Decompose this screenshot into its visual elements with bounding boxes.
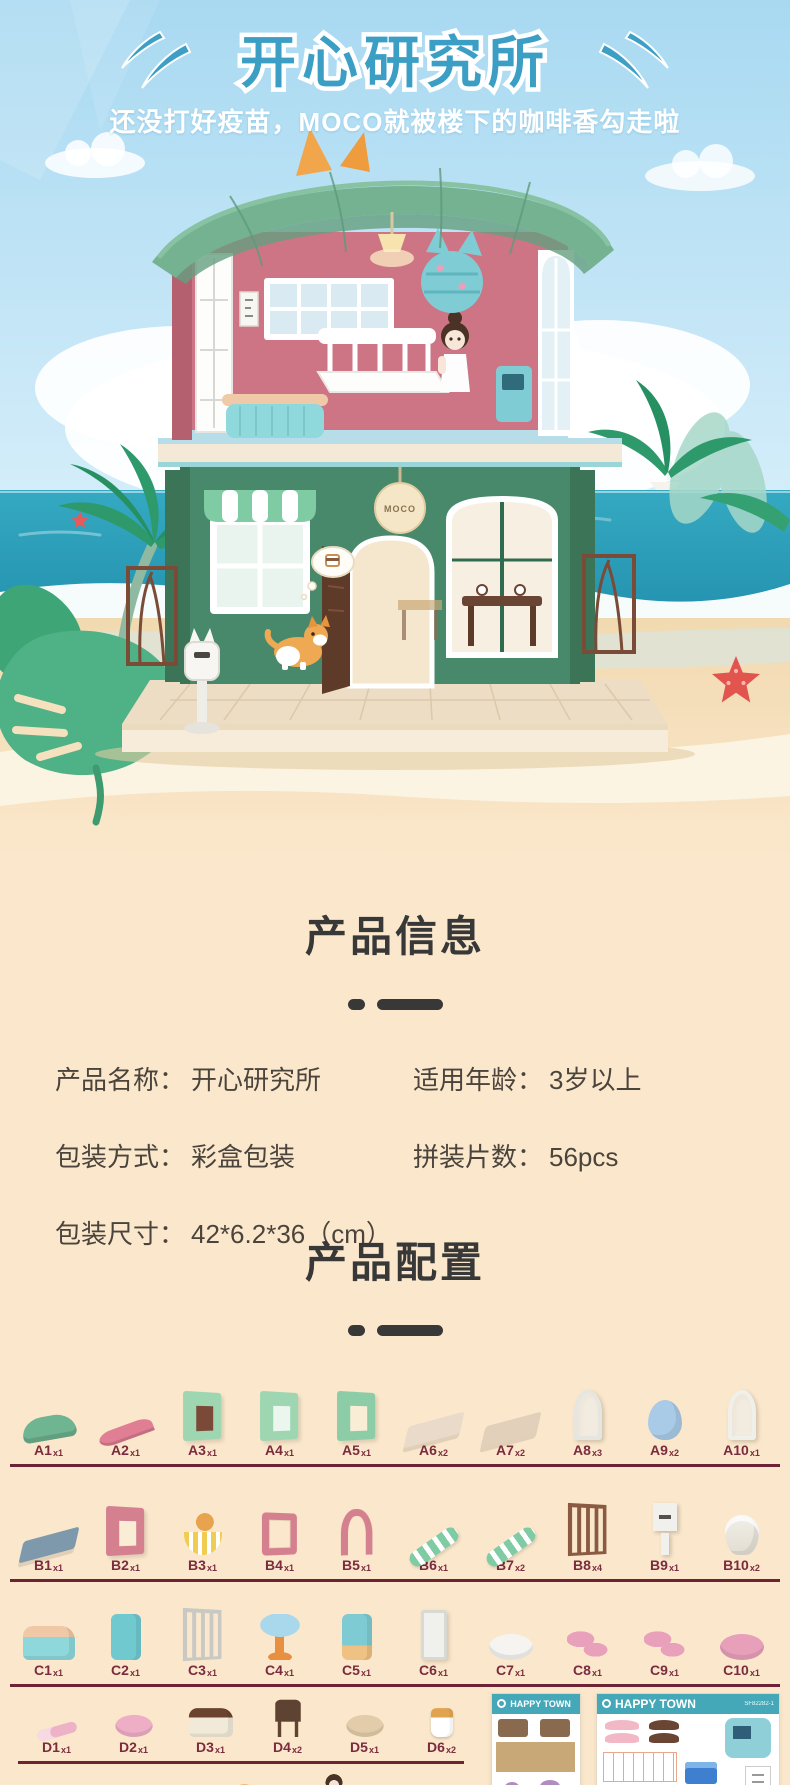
part-c4: C4x1 — [241, 1602, 318, 1678]
floor-panel-icon — [405, 1382, 463, 1440]
chair-icon-shape — [274, 1699, 301, 1736]
heading-underline — [0, 999, 790, 1010]
part-b1: B1x1 — [10, 1497, 87, 1573]
part-a10: A10x1 — [703, 1382, 780, 1458]
part-d4: D4x2 — [249, 1695, 326, 1755]
pink-roof-slope-icon — [98, 1382, 154, 1440]
part-label: D6x2 — [427, 1740, 456, 1755]
donut-icon — [228, 1778, 259, 1785]
parts-row-a: A1x1A2x1A3x1A4x1A5x1A6x2A7x2A8x3A9x2A10x… — [0, 1376, 790, 1462]
part-b7: B7x2 — [472, 1497, 549, 1573]
part-label: C6x1 — [419, 1663, 448, 1678]
part-d6: D6x2 — [403, 1695, 480, 1755]
part-a6: A6x2 — [395, 1382, 472, 1458]
part-c3: C3x1 — [164, 1602, 241, 1678]
part-a8: A8x3 — [549, 1382, 626, 1458]
sheet-header: HAPPY TOWN SF82282-1 — [597, 1694, 779, 1714]
part-label: C4x1 — [265, 1663, 294, 1678]
sheet-page: HAPPY TOWN — [491, 1693, 581, 1785]
basin-icon — [115, 1701, 152, 1737]
part-label: B1x1 — [34, 1558, 63, 1573]
part-label: B2x1 — [111, 1558, 140, 1573]
part-label: C7x1 — [496, 1663, 525, 1678]
row-divider — [10, 1579, 780, 1582]
sticker-brown-arc-icon — [649, 1733, 679, 1743]
cat-shelf-icon — [111, 1602, 141, 1660]
parts-row-c: C1x1C2x1C3x1C4x1C5x1C6x1C7x1C8x1C9x1C10x… — [0, 1586, 790, 1682]
coffee-cup-icon-shape — [430, 1708, 452, 1737]
part-c1: C1x1 — [10, 1602, 87, 1678]
sticker-brown-arc-icon — [649, 1720, 679, 1730]
part-label: A1x1 — [34, 1443, 63, 1458]
info-label: 包装方式： — [55, 1142, 185, 1172]
sticker-wall-band-icon — [496, 1742, 575, 1772]
pink-holder-icon — [720, 1602, 764, 1660]
green-roof-arch-icon-shape — [20, 1411, 77, 1444]
sheet-stickers — [597, 1714, 779, 1785]
sticker-counter-icon — [540, 1719, 570, 1737]
info-field-age: 适用年龄：3岁以上 — [413, 1060, 735, 1097]
part-d2: D2x1 — [95, 1695, 172, 1755]
parts-row-d: D1x1D2x1D3x1D4x2D5x1D6x2 — [8, 1691, 490, 1759]
door-wall-panel-icon — [183, 1382, 223, 1440]
chair-icon — [274, 1701, 301, 1737]
part-c10: C10x1 — [703, 1602, 780, 1678]
product-config-section: 产品配置 A1x1A2x1A3x1A4x1A5x1A6x2A7x2A8x3A9x… — [0, 1160, 790, 1785]
part-b2: B2x1 — [87, 1497, 164, 1573]
balcony-corgi-icon — [184, 1497, 222, 1555]
pink-accessories-2-icon — [644, 1602, 686, 1660]
info-value: 开心研究所 — [191, 1065, 321, 1095]
underline-dash — [377, 1325, 443, 1336]
part-label: A6x2 — [419, 1443, 448, 1458]
part-label: C1x1 — [34, 1663, 63, 1678]
pink-holder-icon-shape — [720, 1634, 764, 1660]
house-sign-text: MOCO — [384, 504, 416, 514]
part-d3: D3x1 — [172, 1695, 249, 1755]
product-info-heading: 产品信息 — [0, 903, 790, 964]
sticker-pink-arc-icon — [605, 1733, 639, 1743]
part-e3: E3x2 — [199, 1772, 289, 1785]
cat-shelf-icon-shape — [111, 1614, 141, 1660]
part-label: B4x1 — [265, 1558, 294, 1573]
part-b5: B5x1 — [318, 1497, 395, 1573]
part-label: A5x1 — [342, 1443, 371, 1458]
garden-fence-icon — [568, 1497, 608, 1555]
part-c7: C7x1 — [472, 1602, 549, 1678]
parts-bottom-left: D1x1D2x1D3x1D4x2D5x1D6x2 E1x2E2x2E3x2E4x… — [8, 1691, 476, 1785]
part-b3: B3x1 — [164, 1497, 241, 1573]
part-label: B10x2 — [723, 1558, 760, 1573]
tray-icon — [489, 1602, 533, 1660]
product-info-section: 产品信息 产品名称：开心研究所适用年龄：3岁以上包装方式：彩盒包装拼装片数：56… — [0, 862, 790, 1160]
info-field-pack: 包装方式：彩盒包装 — [55, 1137, 413, 1174]
info-value: 3岁以上 — [549, 1065, 641, 1095]
sheet-header: HAPPY TOWN — [492, 1694, 580, 1714]
part-a2: A2x1 — [87, 1382, 164, 1458]
pink-arch-doorway-icon — [341, 1497, 373, 1555]
girl-figure-icon — [323, 1778, 347, 1785]
thermometer-icon — [36, 1701, 77, 1737]
part-d5: D5x1 — [326, 1695, 403, 1755]
pink-window-wall-icon-shape — [106, 1506, 144, 1556]
bread-basket-icon-shape — [346, 1715, 383, 1737]
instruction-sheet-1: HAPPY TOWN — [490, 1693, 582, 1785]
row-divider — [10, 1684, 780, 1687]
fence-divider-icon — [183, 1602, 223, 1660]
brand-logo-icon — [497, 1699, 506, 1708]
info-value: 彩盒包装 — [191, 1142, 295, 1172]
sheet-title: HAPPY TOWN — [615, 1697, 696, 1711]
instruction-sheet-2: HAPPY TOWN SF82282-1 — [596, 1693, 780, 1785]
part-e1: E1x2 — [18, 1772, 108, 1785]
pink-window-wall-icon — [106, 1497, 146, 1555]
reception-counter-icon — [23, 1602, 75, 1660]
fence-divider-icon-shape — [182, 1608, 221, 1661]
part-e2: E2x2 — [108, 1772, 198, 1785]
part-a1: A1x1 — [10, 1382, 87, 1458]
parts-grid: A1x1A2x1A3x1A4x1A5x1A6x2A7x2A8x3A9x2A10x… — [0, 1376, 790, 1785]
part-label: A7x2 — [496, 1443, 525, 1458]
row-divider — [18, 1761, 464, 1764]
part-label: C2x1 — [111, 1663, 140, 1678]
part-label: B9x1 — [650, 1558, 679, 1573]
part-label: C8x1 — [573, 1663, 602, 1678]
part-label: D1x1 — [42, 1740, 71, 1755]
sticker-accessory-icon — [540, 1780, 560, 1785]
underline-dot — [348, 1325, 365, 1336]
coffee-cup-icon — [430, 1701, 452, 1737]
part-label: C9x1 — [650, 1663, 679, 1678]
info-field-name: 产品名称：开心研究所 — [55, 1060, 413, 1097]
part-label: B3x1 — [188, 1558, 217, 1573]
part-label: A4x1 — [265, 1443, 294, 1458]
part-label: D2x1 — [119, 1740, 148, 1755]
part-b8: B8x4 — [549, 1497, 626, 1573]
underline-dot — [348, 999, 365, 1010]
part-c2: C2x1 — [87, 1602, 164, 1678]
part-a3: A3x1 — [164, 1382, 241, 1458]
sticker-logo-card-icon — [685, 1762, 717, 1784]
round-table-icon — [260, 1602, 300, 1660]
pedestal-table-icon-shape — [725, 1515, 759, 1555]
reception-counter-icon-shape — [23, 1626, 75, 1660]
pink-accessories-icon — [567, 1602, 609, 1660]
part-b9: B9x1 — [626, 1497, 703, 1573]
cake-counter-icon — [188, 1701, 232, 1737]
coffee-machine-icon-shape — [342, 1614, 372, 1660]
part-label: B8x4 — [573, 1558, 602, 1573]
part-label: D4x2 — [273, 1740, 302, 1755]
part-label: D3x1 — [196, 1740, 225, 1755]
part-b6: B6x1 — [395, 1497, 472, 1573]
part-b10: B10x2 — [703, 1497, 780, 1573]
part-e4: E4x1 — [289, 1772, 379, 1785]
part-label: C10x1 — [723, 1663, 760, 1678]
sheet-stickers — [492, 1714, 580, 1785]
part-e5: E5x1 — [380, 1772, 470, 1785]
part-label: C5x1 — [342, 1663, 371, 1678]
girl-figure-icon-shape — [323, 1773, 347, 1785]
part-label: C3x1 — [188, 1663, 217, 1678]
pink-arch-doorway-icon-shape — [340, 1508, 372, 1555]
baguette-icon — [130, 1778, 178, 1785]
part-c5: C5x1 — [318, 1602, 395, 1678]
sticker-pink-arc-icon — [605, 1720, 639, 1730]
info-label: 拼装片数： — [413, 1142, 543, 1172]
part-a5: A5x1 — [318, 1382, 395, 1458]
corner-window-icon — [728, 1382, 756, 1440]
part-c9: C9x1 — [626, 1602, 703, 1678]
awning-icon — [204, 490, 316, 522]
page-subtitle: 还没打好疫苗，MOCO就被楼下的咖啡香勾走啦 — [0, 102, 790, 139]
underline-dash — [377, 999, 443, 1010]
pink-frame-icon — [262, 1497, 298, 1555]
part-label: A8x3 — [573, 1443, 602, 1458]
croissant-icon — [44, 1778, 83, 1785]
green-roof-arch-icon — [22, 1382, 76, 1440]
parts-row-b: B1x1B2x1B3x1B4x1B5x1B6x1B7x2B8x4B9x1B10x… — [0, 1471, 790, 1577]
blue-dome-icon-shape — [648, 1400, 682, 1440]
sticker-eye-chart-icon — [745, 1766, 771, 1785]
parts-row-e: E1x2E2x2E3x2E4x1E5x1 — [8, 1768, 480, 1785]
row-divider — [10, 1464, 780, 1467]
awning-strip-icon — [406, 1497, 462, 1555]
pink-accessories-icon-shape — [567, 1628, 609, 1660]
display-board-icon — [421, 1602, 447, 1660]
part-label: A10x1 — [723, 1443, 760, 1458]
brand-logo-icon — [602, 1699, 611, 1708]
arched-window-frame-icon — [574, 1382, 602, 1440]
part-label: D5x1 — [350, 1740, 379, 1755]
part-d1: D1x1 — [18, 1695, 95, 1755]
parts-bottom-block: D1x1D2x1D3x1D4x2D5x1D6x2 E1x2E2x2E3x2E4x… — [0, 1691, 790, 1785]
tray-icon-shape — [489, 1634, 533, 1660]
sheet-page: HAPPY TOWN SF82282-1 — [596, 1693, 780, 1785]
pedestal-table-icon — [725, 1497, 759, 1555]
arched-window-frame-icon-shape — [574, 1390, 602, 1440]
info-field-pcs: 拼装片数：56pcs — [413, 1137, 735, 1174]
pink-frame-icon-shape — [261, 1512, 296, 1555]
instruction-sheets: HAPPY TOWN — [476, 1691, 782, 1785]
heading-underline — [0, 1325, 790, 1336]
basin-icon-shape — [115, 1715, 152, 1737]
sticker-screen-icon — [733, 1726, 751, 1739]
product-detail-page: MOCO — [0, 0, 790, 1785]
part-c6: C6x1 — [395, 1602, 472, 1678]
sheet-title: HAPPY TOWN — [510, 1699, 571, 1709]
part-c8: C8x1 — [549, 1602, 626, 1678]
sheet-code: SF82282-1 — [744, 1701, 774, 1707]
pink-accessories-2-icon-shape — [644, 1628, 686, 1660]
part-a9: A9x2 — [626, 1382, 703, 1458]
part-label: A9x2 — [650, 1443, 679, 1458]
sticker-counter-icon — [498, 1719, 528, 1737]
window-wall-panel-icon-shape — [260, 1391, 298, 1441]
part-a4: A4x1 — [241, 1382, 318, 1458]
display-board-icon-shape — [421, 1610, 447, 1660]
part-label: A3x1 — [188, 1443, 217, 1458]
corner-window-icon-shape — [728, 1390, 756, 1440]
base-beam-icon — [20, 1497, 78, 1555]
info-label: 适用年龄： — [413, 1065, 543, 1095]
awning-icon — [483, 1497, 539, 1555]
sticker-scallops-icon — [603, 1752, 677, 1782]
lattice-floor-panel-icon — [482, 1382, 540, 1440]
part-label: A2x1 — [111, 1443, 140, 1458]
info-label: 包装尺寸： — [55, 1219, 185, 1249]
part-a7: A7x2 — [472, 1382, 549, 1458]
window-wall-panel-icon — [260, 1382, 300, 1440]
door-wall-panel-icon-shape — [183, 1391, 221, 1441]
info-value: 56pcs — [549, 1142, 618, 1172]
balcony-corgi-icon-shape — [184, 1513, 222, 1555]
coffee-machine-icon — [342, 1602, 372, 1660]
hero-section: MOCO — [0, 0, 790, 862]
garden-fence-icon-shape — [567, 1503, 606, 1556]
opening-wall-panel-icon-shape — [337, 1391, 375, 1441]
part-b4: B4x1 — [241, 1497, 318, 1573]
cake-counter-icon-shape — [188, 1708, 232, 1737]
part-label: B5x1 — [342, 1558, 371, 1573]
mailbox-icon-shape — [652, 1503, 678, 1555]
info-label: 产品名称： — [55, 1065, 185, 1095]
corgi-figure-icon — [407, 1778, 443, 1785]
page-title: 开心研究所 — [240, 31, 550, 94]
opening-wall-panel-icon — [337, 1382, 377, 1440]
mailbox-icon — [652, 1497, 678, 1555]
bread-basket-icon — [346, 1701, 383, 1737]
blue-dome-icon — [648, 1382, 682, 1440]
round-table-icon-shape — [260, 1614, 300, 1660]
title-banner: 开心研究所 — [0, 14, 790, 114]
